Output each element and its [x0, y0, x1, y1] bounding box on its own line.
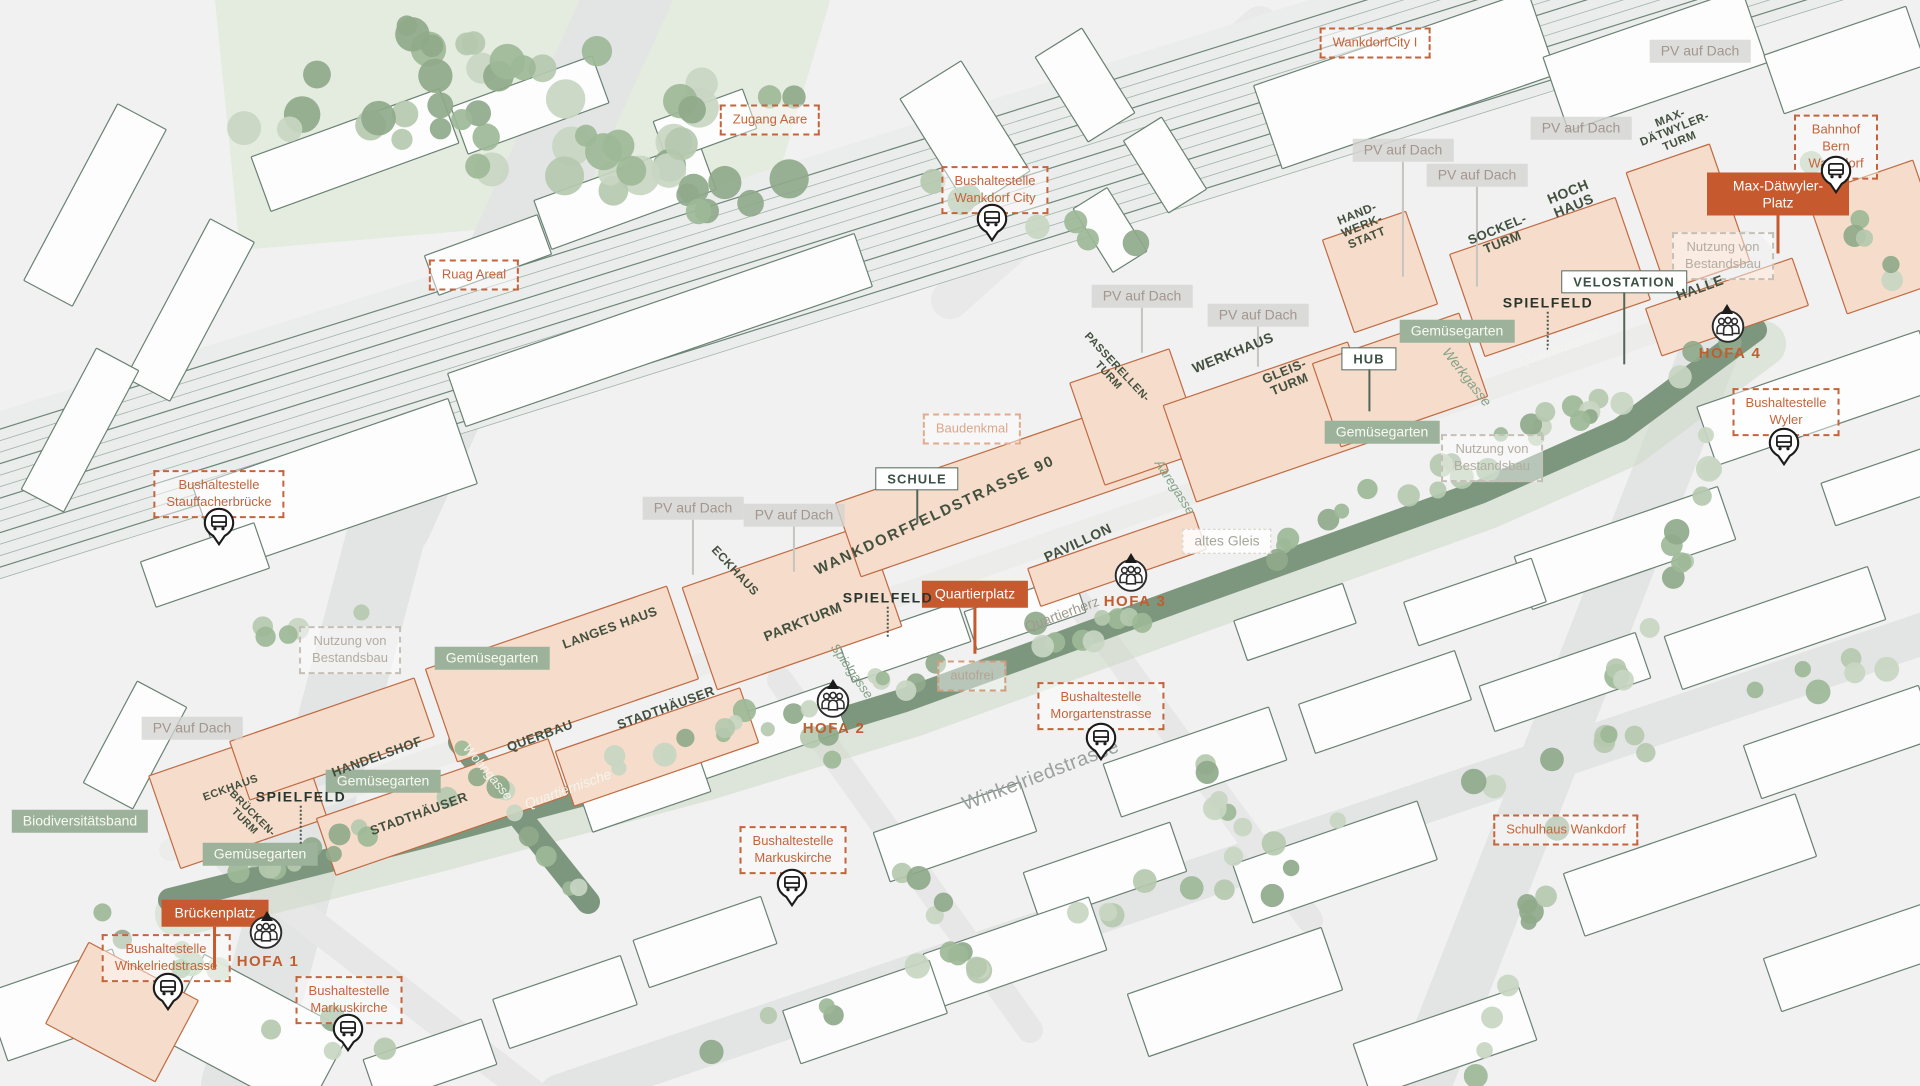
bus-stop-icon [203, 507, 235, 551]
building-name-label: ECKHAUS [709, 544, 761, 599]
label-leader-line [1368, 370, 1370, 412]
pv-roof-label: PV auf Dach [643, 497, 744, 520]
pv-roof-label: PV auf Dach [1208, 304, 1309, 327]
bus-stop-icon [1768, 427, 1800, 471]
street-name-label: Quartiernische [1518, 326, 1603, 369]
pv-roof-label: PV auf Dach [1427, 164, 1528, 187]
building-name-label: HAND- WERK- STATT [1335, 200, 1390, 252]
area-label: Bahnhof Bern Wankdorf [1794, 115, 1878, 180]
street-name-label: Aaregasse [1152, 457, 1199, 517]
label-leader-line [1402, 161, 1404, 276]
pv-roof-label: PV auf Dach [1650, 40, 1751, 63]
building-name-label: MAX- DÄTWYLER- TURM [1634, 99, 1716, 161]
area-label: Zugang Aare [720, 105, 820, 136]
building-name-label: QUERBAU [505, 718, 575, 755]
building-name-label: WERKHAUS [1190, 330, 1276, 376]
area-label: Bushaltestelle Morgartenstrasse [1037, 682, 1164, 730]
building-name-label: BRÜCKEN- TURM [219, 789, 277, 847]
entry-marker-icon [1125, 553, 1137, 563]
area-label: Bushaltestelle Markuskirche [740, 826, 847, 874]
street-name-label: Werkgasse [1439, 344, 1495, 409]
pv-roof-label: PV auf Dach [142, 717, 243, 740]
bus-stop-icon [776, 868, 808, 912]
pv-roof-label: PV auf Dach [1531, 117, 1632, 140]
building-name-label: SOCKEL- TURM [1466, 211, 1534, 260]
building-name-label: PASSERELLEN- TURM [1073, 331, 1152, 413]
building-name-label: PAVILLON [1042, 521, 1114, 565]
label-leader-line [214, 926, 217, 968]
hofa-residents-icon [249, 915, 284, 955]
area-label: Ruag Areal [429, 260, 519, 291]
label-leader-line [300, 805, 302, 843]
label-leader-line [974, 607, 977, 653]
building-name-label: WANKDORFFELDSTRASSE 90 [812, 453, 1057, 579]
spielfeld-label: SPIELFELD [843, 590, 934, 607]
hofa-label: HOFA 4 [1699, 345, 1762, 363]
label-leader-line [1623, 293, 1625, 365]
pv-roof-label: PV auf Dach [744, 504, 845, 527]
label-leader-line [793, 526, 795, 571]
bus-stop-icon [1085, 722, 1117, 766]
site-plan-canvas: PV auf DachPV auf DachPV auf DachPV auf … [0, 0, 1920, 1086]
building-name-label: PARKTURM [762, 599, 845, 644]
pv-roof-label: PV auf Dach [1092, 285, 1193, 308]
building-name-label: STADTHÄUSER [368, 790, 469, 838]
street-name-label: Wohngasse [460, 741, 516, 803]
bus-stop-icon [976, 203, 1008, 247]
label-leader-line [916, 490, 918, 524]
building-name-label: HANDELSHOF [330, 734, 424, 780]
area-label: Nutzung von Bestandsbau [1672, 232, 1774, 280]
street-name-label: Quartierherz [1023, 593, 1102, 635]
bus-stop-icon [332, 1013, 364, 1057]
label-leader-line [1257, 326, 1259, 366]
signpost-label: VELOSTATION [1561, 270, 1687, 293]
building-name-label: HALLE [1674, 272, 1725, 303]
plaza-label: Max-Dätwyler-Platz [1707, 172, 1849, 215]
pv-roof-label: PV auf Dach [1353, 139, 1454, 162]
area-label: autofrei [937, 661, 1006, 692]
area-label: Nutzung von Bestandsbau [299, 626, 401, 674]
label-leader-line [1476, 186, 1478, 286]
building-name-label: GLEIS- TURM [1260, 356, 1313, 399]
plaza-label: Quartierplatz [922, 581, 1028, 608]
label-leader-line [1141, 307, 1143, 352]
spielfeld-label: SPIELFELD [1503, 295, 1594, 312]
street-name-label: Spielgasse [827, 641, 876, 702]
label-leader-line [887, 606, 889, 636]
area-label: Bushaltestelle Wyler [1733, 388, 1840, 436]
label-leader-line [1777, 216, 1780, 254]
area-label: Schulhaus Wankdorf [1493, 815, 1638, 846]
area-label: Bushaltestelle Winkelriedstrasse [102, 934, 231, 982]
garden-label: Gemüsegarten [203, 843, 318, 866]
building-name-label: LANGES HAUS [561, 604, 660, 651]
garden-label: Gemüsegarten [1325, 421, 1440, 444]
spielfeld-label: SPIELFELD [256, 789, 347, 806]
building-name-label: HOCH HAUS [1545, 177, 1596, 221]
entry-marker-icon [1721, 304, 1733, 314]
label-leader-line [1547, 311, 1549, 349]
area-label: WankdorfCity I [1320, 28, 1431, 59]
bus-stop-icon [1820, 155, 1852, 199]
area-label: Bushaltestelle Stauffacherbrücke [153, 470, 284, 518]
hofa-residents-icon [816, 684, 851, 724]
building-name-label: ECKHAUS [202, 774, 260, 805]
building-name-label: STADTHÄUSER [615, 684, 716, 732]
hofa-residents-icon [1711, 309, 1746, 349]
bus-stop-icon [152, 972, 184, 1016]
area-label: Nutzung von Bestandsbau [1441, 434, 1543, 482]
pv-roof-label: altes Gleis [1182, 529, 1271, 554]
signpost-label: SCHULE [875, 467, 958, 490]
annotation-layer: PV auf DachPV auf DachPV auf DachPV auf … [0, 0, 1920, 1086]
hofa-residents-icon [1114, 558, 1149, 598]
garden-label: Biodiversitätsband [12, 810, 148, 833]
area-label: Bushaltestelle Markuskirche [296, 976, 403, 1024]
label-leader-line [692, 519, 694, 574]
hofa-label: HOFA 2 [803, 720, 866, 738]
garden-label: Gemüsegarten [326, 770, 441, 793]
hofa-label: HOFA 3 [1104, 593, 1167, 611]
entry-marker-icon [261, 911, 273, 921]
area-label: Bushaltestelle Wankdorf City [941, 166, 1048, 214]
entry-marker-icon [827, 679, 839, 689]
garden-label: Gemüsegarten [1400, 320, 1515, 343]
street-name-label: Quartiernische [522, 766, 613, 813]
street-name-label: Winkelriedstrasse [959, 735, 1123, 817]
hofa-label: HOFA 1 [237, 953, 300, 971]
signpost-label: HUB [1341, 347, 1396, 370]
garden-label: Gemüsegarten [435, 647, 550, 670]
plaza-label: Brückenplatz [162, 900, 269, 927]
area-label: Baudenkmal [923, 414, 1021, 445]
